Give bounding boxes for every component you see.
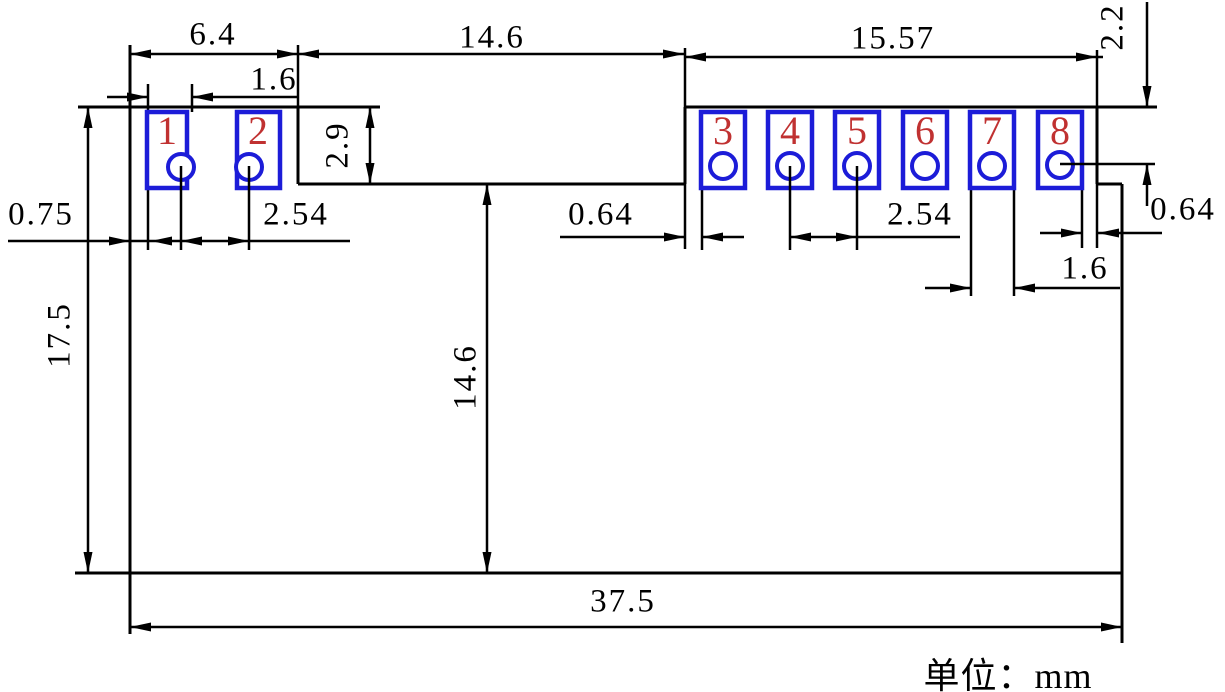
pad-hole-6 [912, 153, 938, 179]
arrowhead [685, 53, 706, 62]
arrowhead [366, 163, 375, 184]
arrowhead [664, 233, 685, 242]
dim-pad7-width-label: 1.6 [1061, 253, 1108, 286]
pad-number-2: 2 [248, 111, 268, 151]
arrowhead [84, 552, 93, 573]
arrowhead [483, 552, 492, 573]
arrowhead [181, 237, 202, 246]
arrowhead [1143, 164, 1152, 185]
dim-right-block-width-label: 15.57 [851, 23, 935, 56]
dim-pitch-left-label: 2.54 [263, 199, 329, 232]
pad-number-8: 8 [1050, 111, 1070, 151]
arrowhead [1101, 623, 1122, 632]
dim-board-width-label: 37.5 [590, 586, 656, 619]
dim-hole8-top-offset-label: 2.2 [1097, 3, 1130, 50]
dim-pad3-gap-label: 0.64 [568, 199, 634, 232]
arrowhead [84, 107, 93, 128]
arrowhead [1076, 53, 1097, 62]
dim-left-block-width-label: 6.4 [189, 19, 236, 52]
dim-pad-height-label: 2.9 [322, 121, 355, 168]
arrowhead [277, 50, 298, 59]
pad-number-3: 3 [713, 111, 733, 151]
dim-pad1-width-label: 1.6 [250, 64, 297, 97]
arrowhead [663, 50, 684, 59]
arrowhead [130, 623, 151, 632]
pad-number-4: 4 [780, 111, 800, 151]
arrowhead [130, 50, 151, 59]
arrowhead [1143, 86, 1152, 107]
dim-notch-height-label: 14.6 [450, 344, 483, 410]
dim-middle-notch-width-label: 14.6 [459, 22, 525, 55]
arrowhead [192, 93, 213, 102]
arrowhead [366, 107, 375, 128]
arrowhead [1014, 284, 1035, 293]
pcb-dimension-drawing: 6.4 14.6 15.57 1.6 0.75 2.54 0.64 2.54 0… [0, 0, 1225, 692]
arrowhead [950, 284, 971, 293]
arrowhead [1061, 229, 1082, 238]
dim-pitch-right-label: 2.54 [887, 199, 953, 232]
arrowhead [127, 93, 148, 102]
arrowhead [836, 233, 857, 242]
pad-number-7: 7 [982, 111, 1002, 151]
unit-label: 单位：mm [923, 658, 1092, 692]
pad-number-6: 6 [915, 111, 935, 151]
arrowhead [702, 233, 723, 242]
arrowhead [109, 237, 130, 246]
dim-pad8-edge-gap-label: 0.64 [1150, 194, 1216, 227]
arrowhead [298, 50, 319, 59]
dim-left-edge-offset-label: 0.75 [8, 199, 74, 232]
arrowhead [228, 237, 249, 246]
pad-hole-3 [710, 153, 736, 179]
pad-number-1: 1 [157, 111, 177, 151]
dim-board-height-label: 17.5 [44, 302, 77, 368]
arrowhead [151, 237, 172, 246]
arrowhead [790, 233, 811, 242]
arrowhead [1098, 229, 1119, 238]
pad-number-5: 5 [847, 111, 867, 151]
arrowhead [483, 184, 492, 205]
pad-hole-7 [979, 153, 1005, 179]
